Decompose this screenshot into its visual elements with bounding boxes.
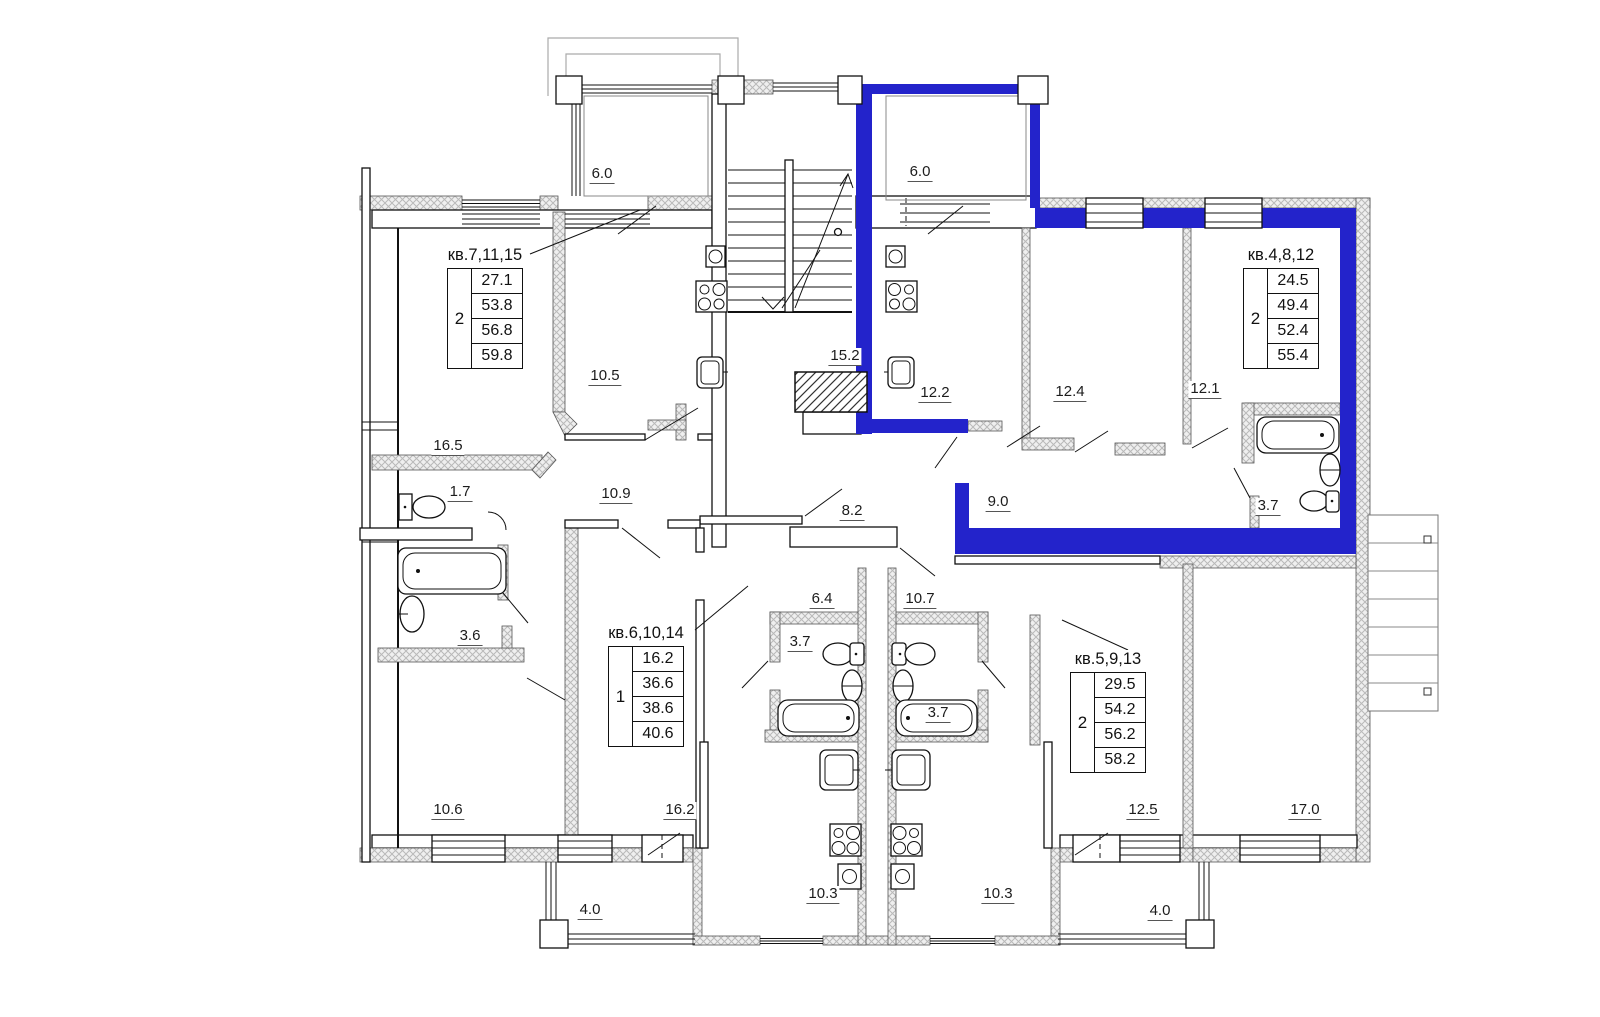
area-label-room-12-2: 12.2 — [918, 385, 951, 403]
toilet-symbol — [1300, 491, 1339, 512]
kitchen-sink-symbol — [885, 750, 930, 790]
apartment-table-5-9-13: кв.5,9,13 2 29.5 54.2 56.2 58.2 — [1070, 650, 1146, 773]
apartment-area-value: 58.2 — [1095, 748, 1145, 772]
area-label-kitchen-10-3-right: 10.3 — [981, 886, 1014, 904]
area-label-room-12-1: 12.1 — [1188, 381, 1221, 399]
apartment-area-value: 55.4 — [1268, 344, 1318, 368]
kitchen-sink-symbol — [884, 357, 914, 388]
kitchen-sink-symbol — [697, 357, 728, 388]
apartment-table-7-11-15: кв.7,11,15 2 27.1 53.8 56.8 59.8 — [447, 246, 523, 369]
apartment-area-value: 52.4 — [1268, 319, 1318, 344]
stove-symbol — [830, 824, 861, 856]
fire-escape-ladder — [1368, 515, 1438, 711]
area-label-corridor-8-2: 8.2 — [840, 503, 865, 521]
area-label-room-10-6: 10.6 — [431, 802, 464, 820]
area-label-hall-6-4: 6.4 — [810, 591, 835, 609]
area-label-hall-10-7: 10.7 — [903, 591, 936, 609]
area-label-balcony-4-0-right: 4.0 — [1148, 903, 1173, 921]
apartment-area-value: 53.8 — [472, 294, 522, 319]
apartment-area-value: 29.5 — [1095, 673, 1145, 698]
apartment-title: кв.7,11,15 — [446, 246, 524, 265]
apartment-title: кв.4,8,12 — [1246, 246, 1316, 265]
toilet-symbol — [823, 643, 864, 665]
kitchen-sink-symbol — [820, 750, 860, 790]
area-label-wc-1-7: 1.7 — [448, 484, 473, 502]
floor-plan-svg — [0, 0, 1600, 1017]
area-label-bath-3-7-right: 3.7 — [926, 705, 951, 723]
area-label-corridor-9-0: 9.0 — [986, 494, 1011, 512]
bathtub-symbol — [1257, 417, 1339, 453]
area-label-room-17-0: 17.0 — [1288, 802, 1321, 820]
apartment-rooms-count: 2 — [1244, 269, 1268, 368]
apartment-title: кв.5,9,13 — [1073, 650, 1143, 669]
area-label-room-16-2: 16.2 — [663, 802, 696, 820]
stove-symbol — [696, 281, 727, 312]
toilet-symbol — [892, 643, 935, 665]
apartment-title: кв.6,10,14 — [606, 624, 686, 643]
wash-sink-symbol — [1320, 454, 1340, 486]
balcony-bottom-left-structure — [540, 862, 695, 948]
apartment-rooms-count: 2 — [1071, 673, 1095, 772]
area-label-bath-3-7-left: 3.7 — [788, 634, 813, 652]
apartment-area-value: 40.6 — [633, 722, 683, 746]
appliance-symbol — [891, 864, 914, 889]
apartment-area-value: 36.6 — [633, 672, 683, 697]
area-label-bath-3-6: 3.6 — [458, 628, 483, 646]
apartment-area-value: 38.6 — [633, 697, 683, 722]
apartment-area-value: 24.5 — [1268, 269, 1318, 294]
bathtub-symbol — [778, 700, 859, 736]
area-label-bath-3-7-apt4: 3.7 — [1256, 498, 1281, 516]
bathtub-symbol — [398, 548, 506, 594]
wash-sink-symbol — [893, 670, 913, 702]
balcony-bottom-right-structure — [1058, 862, 1214, 948]
apartment-area-value: 54.2 — [1095, 698, 1145, 723]
floor-plan-page: 6.0 6.0 10.5 15.2 12.2 12.4 12.1 16.5 1.… — [0, 0, 1600, 1017]
appliance-symbol — [706, 246, 725, 267]
stove-symbol — [891, 824, 922, 856]
apartment-table-4-8-12: кв.4,8,12 2 24.5 49.4 52.4 55.4 — [1243, 246, 1319, 369]
appliance-symbol — [838, 864, 861, 889]
apartment-area-value: 59.8 — [472, 344, 522, 368]
shaft-hatched — [795, 372, 867, 412]
apartment-area-value: 27.1 — [472, 269, 522, 294]
area-label-room-16-5: 16.5 — [431, 438, 464, 456]
staircase — [728, 160, 853, 312]
area-label-balcony-4-0-left: 4.0 — [578, 902, 603, 920]
wash-sink-symbol — [398, 596, 424, 632]
toilet-symbol — [399, 494, 445, 520]
area-label-room-12-4: 12.4 — [1053, 384, 1086, 402]
apartment-area-value: 16.2 — [633, 647, 683, 672]
area-label-corridor-10-9: 10.9 — [599, 486, 632, 504]
stove-symbol — [886, 281, 917, 312]
area-label-kitchen-10-5: 10.5 — [588, 368, 621, 386]
apartment-table-6-10-14: кв.6,10,14 1 16.2 36.6 38.6 40.6 — [608, 624, 684, 747]
apartment-rooms-count: 1 — [609, 647, 633, 746]
area-label-hall-15-2: 15.2 — [828, 348, 861, 366]
wash-sink-symbol — [842, 670, 862, 702]
apartment-rooms-count: 2 — [448, 269, 472, 368]
apartment-area-value: 56.8 — [472, 319, 522, 344]
area-label-balcony-top-left: 6.0 — [590, 166, 615, 184]
area-label-room-12-5: 12.5 — [1126, 802, 1159, 820]
apartment-area-value: 49.4 — [1268, 294, 1318, 319]
area-label-kitchen-10-3-left: 10.3 — [806, 886, 839, 904]
apartment-area-value: 56.2 — [1095, 723, 1145, 748]
area-label-balcony-top-right: 6.0 — [908, 164, 933, 182]
appliance-symbol — [886, 246, 905, 267]
